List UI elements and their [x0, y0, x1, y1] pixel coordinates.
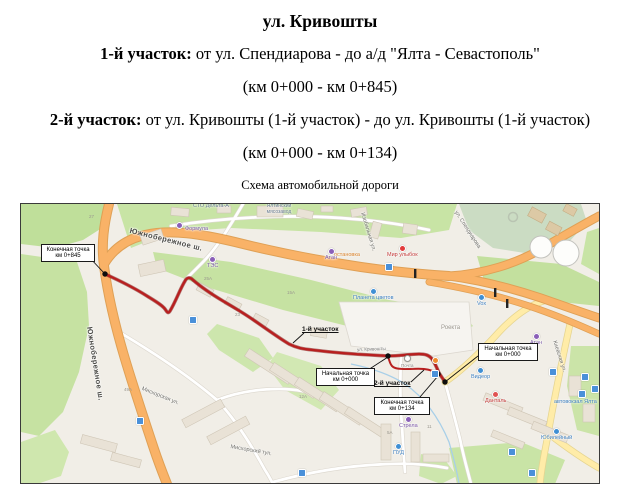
transit-icon — [136, 417, 144, 425]
area-label-roekta: Роекта — [441, 326, 460, 332]
section2-label: 2-й участок: — [50, 110, 142, 129]
callout-end-134: Конечная точка км 0+134 — [374, 397, 430, 415]
callout-start-uch2: Начальная точка км 0+000 — [316, 368, 375, 386]
poi-tes: ТЭС — [207, 256, 218, 270]
poi-mir-ulybok: Мир улыбок — [387, 245, 418, 259]
building-number: 23 — [235, 312, 240, 317]
point-end-845 — [102, 271, 107, 276]
label-section2: 2-й участок — [374, 380, 411, 387]
poi-dantal: Данталь — [485, 391, 506, 405]
callout-line: км 0+134 — [377, 406, 427, 413]
street-label-krivoshty: ул. Кривошты — [357, 346, 386, 352]
transit-icon — [189, 316, 197, 324]
callout-line: км 0+000 — [319, 377, 372, 384]
poi-sto-delta: СТО Дельта-А — [193, 204, 229, 210]
bus-station-icon — [578, 390, 586, 398]
page-title: ул. Кривошты — [0, 11, 640, 32]
poi-atan-1: Атан — [325, 248, 337, 262]
building-number: 12А — [299, 394, 307, 399]
document-page: { "header": { "title": "ул. Кривошты", "… — [0, 0, 640, 502]
poi-icon — [533, 333, 540, 340]
transit-icon — [549, 368, 557, 376]
poi-icon — [432, 357, 439, 364]
poi-bus-stop: остановка — [334, 253, 360, 259]
poi-orange-marker — [432, 357, 439, 365]
poi-videor: Видеор — [471, 367, 490, 381]
building-number: 11 — [427, 424, 432, 429]
section1-text: от ул. Спендиарова - до а/д "Ялта - Сева… — [192, 44, 540, 63]
building-number: 27 — [89, 214, 94, 219]
point-start-uch2 — [385, 353, 390, 358]
map-caption: Схема автомобильной дороги — [0, 178, 640, 193]
poi-icon — [328, 248, 335, 255]
building-number: 5А — [387, 430, 393, 435]
poi-avtovokzal: автовокзал Ялта — [554, 400, 597, 406]
point-start-uch1 — [442, 379, 447, 384]
section2-km: (км 0+000 - км 0+134) — [0, 143, 640, 163]
transit-icon — [591, 385, 599, 393]
transit-icon — [431, 370, 439, 378]
callout-start-uch1: Начальная точка км 0+000 — [478, 343, 538, 361]
building-number: 25А — [204, 276, 212, 281]
poi-formula: Формула — [176, 217, 208, 235]
poi-pochta: Почта — [401, 355, 414, 369]
callout-line: км 0+000 — [481, 352, 535, 359]
poi-icon — [370, 288, 377, 295]
section2-text: от ул. Кривошты (1-й участок) - до ул. К… — [142, 110, 591, 129]
poi-icon — [395, 443, 402, 450]
section2-line: 2-й участок: от ул. Кривошты (1-й участо… — [0, 110, 640, 130]
callout-end-845: Конечная точка км 0+845 — [41, 244, 95, 262]
transit-icon — [508, 448, 516, 456]
poi-icon — [477, 367, 484, 374]
transit-icon — [528, 469, 536, 477]
section1-km: (км 0+000 - км 0+845) — [0, 77, 640, 97]
poi-icon — [209, 256, 216, 263]
poi-vox: Vox — [477, 294, 486, 308]
poi-icon — [404, 355, 411, 362]
poi-icon — [553, 428, 560, 435]
transit-icon — [385, 263, 393, 271]
road-scheme-map: Конечная точка км 0+845 Начальная точка … — [20, 203, 600, 484]
section1-label: 1-й участок: — [100, 44, 192, 63]
building-number: 49А — [124, 387, 132, 392]
poi-yubileyny: Юбилейный — [541, 428, 572, 442]
building-number: 15А — [287, 290, 295, 295]
poi-strela: Стрела — [399, 416, 418, 430]
label-section1: 1-й участок — [302, 326, 339, 333]
poi-pud: ПУД — [393, 443, 404, 457]
callout-line: км 0+845 — [44, 253, 92, 260]
poi-icon — [399, 245, 406, 252]
poi-icon — [176, 222, 183, 229]
transit-icon — [298, 469, 306, 477]
poi-myasozavod: Ялтинский мясозавод — [261, 204, 297, 215]
section1-line: 1-й участок: от ул. Спендиарова - до а/д… — [0, 44, 640, 64]
transit-icon — [581, 373, 589, 381]
poi-planeta-tsvetov: Планета цветов — [353, 288, 394, 302]
poi-icon — [478, 294, 485, 301]
poi-icon — [492, 391, 499, 398]
poi-icon — [405, 416, 412, 423]
